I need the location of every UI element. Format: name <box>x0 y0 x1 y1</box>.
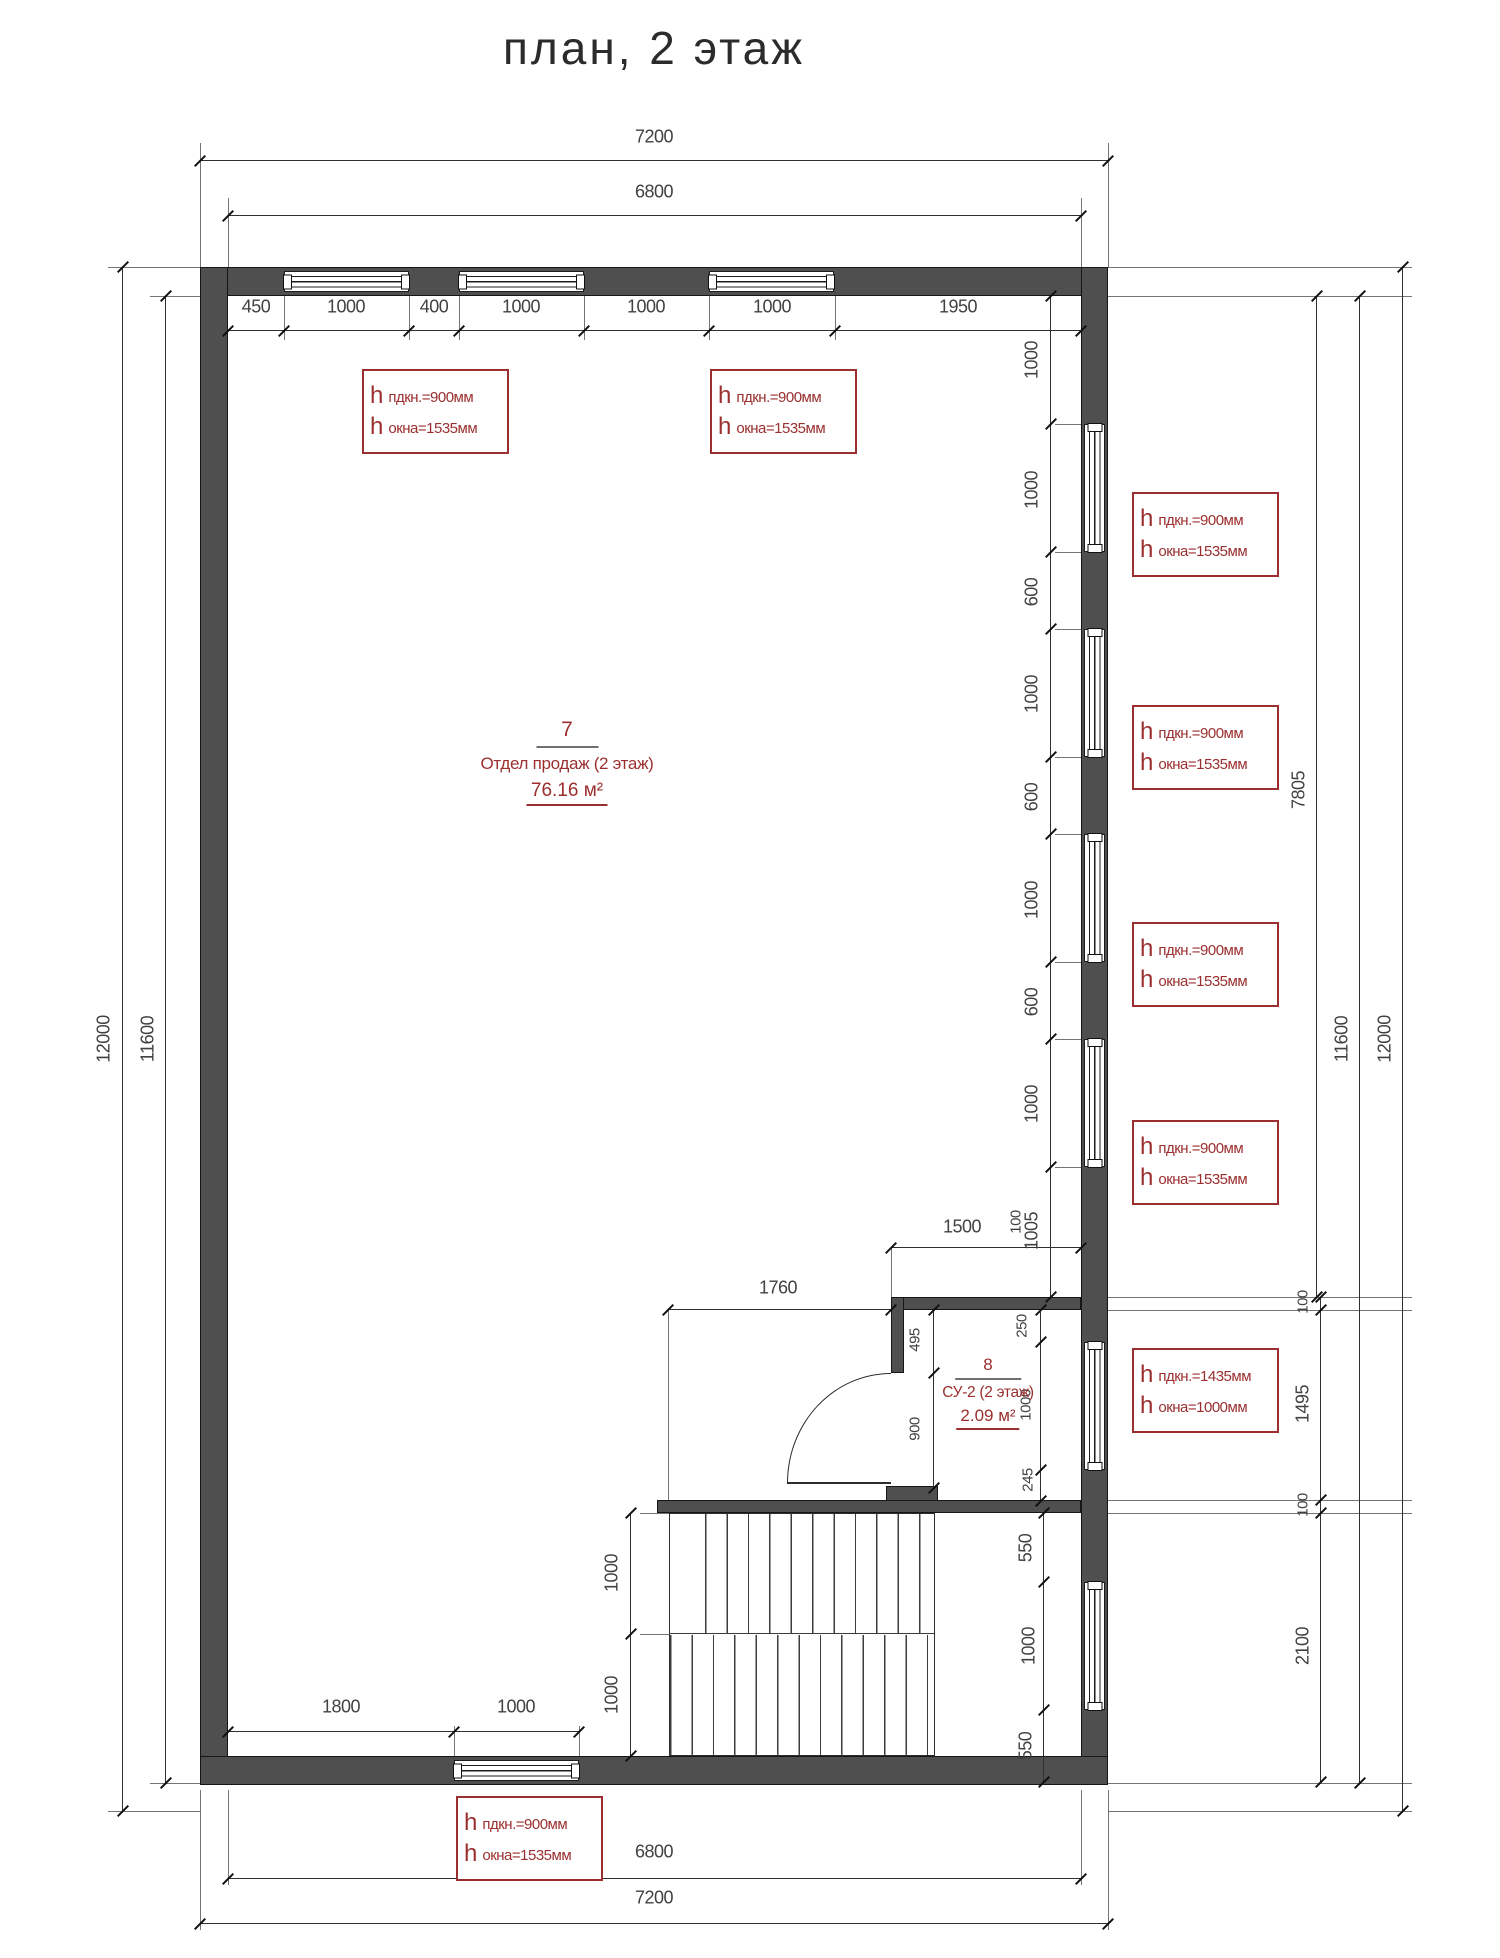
room-area: 2.09 м² <box>956 1406 1019 1430</box>
dimension-line <box>122 267 123 1811</box>
room-number: 8 <box>942 1355 1033 1375</box>
dimension-label: 1000 <box>1022 881 1043 919</box>
annotation-text: окна=1535мм <box>1158 757 1247 772</box>
dimension-label: 600 <box>1022 783 1043 812</box>
dimension-label: 1000 <box>1022 1085 1043 1123</box>
dimension-line <box>228 330 1081 331</box>
window-annotation: hпдкн.=900ммhокна=1535мм <box>456 1796 603 1881</box>
extension-line <box>1055 834 1081 835</box>
extension-line <box>409 296 410 340</box>
annotation-text: пдкн.=900мм <box>1158 726 1243 741</box>
height-symbol: h <box>1140 1169 1153 1187</box>
height-symbol: h <box>1140 723 1153 741</box>
annotation-row: hокна=1535мм <box>464 1845 597 1863</box>
height-symbol: h <box>370 387 383 405</box>
extension-line <box>1055 552 1081 553</box>
height-symbol: h <box>464 1845 477 1863</box>
annotation-row: hпдкн.=900мм <box>370 387 503 405</box>
room-number: 7 <box>480 718 653 742</box>
extension-line <box>1090 1513 1412 1514</box>
annotation-text: пдкн.=900мм <box>1158 513 1243 528</box>
dimension-label: 100 <box>1295 1493 1312 1517</box>
extension-line <box>1055 757 1081 758</box>
dimension-label: 7200 <box>635 1888 673 1909</box>
dimension-label: 250 <box>1014 1314 1031 1338</box>
window <box>1084 1582 1105 1710</box>
window-annotation: hпдкн.=900ммhокна=1535мм <box>1132 492 1279 577</box>
annotation-text: пдкн.=1435мм <box>1158 1369 1251 1384</box>
dimension-label: 1000 <box>502 297 540 318</box>
dimension-label: 450 <box>242 297 271 318</box>
extension-line <box>891 1247 892 1297</box>
dimension-line <box>200 1923 1108 1924</box>
dimension-label: 1000 <box>602 1554 623 1592</box>
dimension-line <box>933 1310 934 1488</box>
dimension-label: 1000 <box>1019 1627 1040 1665</box>
extension-line <box>1090 1500 1412 1501</box>
dimension-label: 400 <box>420 297 449 318</box>
height-symbol: h <box>718 418 731 436</box>
room-name: СУ-2 (2 этаж) <box>942 1384 1033 1402</box>
window <box>1084 834 1105 962</box>
wall-segment <box>891 1297 1081 1310</box>
extension-line <box>668 1309 669 1513</box>
dimension-label: 6800 <box>635 182 673 203</box>
dimension-line <box>165 296 166 1783</box>
extension-line <box>459 296 460 340</box>
height-symbol: h <box>1140 1138 1153 1156</box>
height-symbol: h <box>1140 1397 1153 1415</box>
annotation-text: окна=1535мм <box>1158 974 1247 989</box>
annotation-text: окна=1535мм <box>1158 1172 1247 1187</box>
room-label-rule <box>955 1378 1021 1380</box>
dimension-line <box>1320 1297 1321 1782</box>
extension-line <box>1055 1039 1081 1040</box>
extension-line <box>1081 1790 1082 1885</box>
dimension-line <box>1050 296 1051 1297</box>
dimension-label: 1950 <box>939 297 977 318</box>
dimension-label: 1000 <box>602 1676 623 1714</box>
annotation-text: окна=1535мм <box>388 421 477 436</box>
dimension-label: 100 <box>1295 1290 1312 1314</box>
window-annotation: hпдкн.=1435ммhокна=1000мм <box>1132 1348 1279 1433</box>
extension-line <box>200 1790 201 1930</box>
dimension-label: 1500 <box>943 1217 981 1238</box>
dimension-label: 600 <box>1022 578 1043 607</box>
wall-segment <box>200 1756 1108 1785</box>
stair-landing-divider <box>669 1633 935 1634</box>
annotation-text: окна=1535мм <box>736 421 825 436</box>
annotation-row: hпдкн.=900мм <box>1140 940 1273 958</box>
window-annotation: hпдкн.=900ммhокна=1535мм <box>362 369 509 454</box>
window <box>1084 1342 1105 1470</box>
dimension-line <box>1359 296 1360 1783</box>
window <box>1084 1039 1105 1167</box>
extension-line <box>1055 629 1081 630</box>
height-symbol: h <box>1140 940 1153 958</box>
annotation-row: hокна=1535мм <box>370 418 503 436</box>
window-annotation: hпдкн.=900ммhокна=1535мм <box>1132 705 1279 790</box>
dimension-label: 12000 <box>1375 1015 1396 1063</box>
annotation-text: пдкн.=900мм <box>1158 943 1243 958</box>
height-symbol: h <box>464 1814 477 1832</box>
annotation-text: пдкн.=900мм <box>1158 1141 1243 1156</box>
annotation-row: hокна=1535мм <box>1140 754 1273 772</box>
room-area: 76.16 м² <box>527 780 607 806</box>
door-swing-arc <box>787 1373 891 1483</box>
dimension-line <box>891 1247 1081 1248</box>
annotation-row: hокна=1535мм <box>1140 541 1273 559</box>
stair-treads-lower-flight <box>670 1635 934 1755</box>
annotation-text: окна=1000мм <box>1158 1400 1247 1415</box>
door-leaf <box>787 1482 891 1484</box>
extension-line <box>1108 267 1412 268</box>
height-symbol: h <box>1140 510 1153 528</box>
dimension-label: 1005 <box>1022 1212 1043 1250</box>
dimension-label: 2100 <box>1293 1627 1314 1665</box>
annotation-text: окна=1535мм <box>482 1848 571 1863</box>
extension-line <box>150 296 200 297</box>
window-annotation: hпдкн.=900ммhокна=1535мм <box>1132 1120 1279 1205</box>
extension-line <box>640 1634 669 1635</box>
floor-plan-page: { "title": "план, 2 этаж", "colors": {"w… <box>0 0 1500 1958</box>
dimension-label: 100 <box>1008 1210 1025 1234</box>
window <box>1084 424 1105 552</box>
extension-line <box>640 1513 669 1514</box>
extension-line <box>228 1790 229 1885</box>
height-symbol: h <box>1140 971 1153 989</box>
annotation-row: hокна=1535мм <box>1140 1169 1273 1187</box>
dimension-line <box>1402 267 1403 1811</box>
plan-title: план, 2 этаж <box>503 21 805 75</box>
height-symbol: h <box>1140 541 1153 559</box>
dimension-label: 900 <box>907 1417 924 1441</box>
room-name: Отдел продаж (2 этаж) <box>480 754 653 774</box>
extension-line <box>228 198 229 267</box>
dimension-label: 1760 <box>759 1278 797 1299</box>
annotation-row: hпдкн.=900мм <box>1140 723 1273 741</box>
dimension-label: 1000 <box>1022 471 1043 509</box>
height-symbol: h <box>1140 1366 1153 1384</box>
extension-line <box>1108 1783 1412 1784</box>
annotation-text: пдкн.=900мм <box>482 1817 567 1832</box>
wall-segment <box>657 1500 1081 1513</box>
extension-line <box>1055 424 1081 425</box>
window <box>1084 629 1105 757</box>
annotation-text: пдкн.=900мм <box>388 390 473 405</box>
dimension-label: 245 <box>1020 1468 1037 1492</box>
height-symbol: h <box>718 387 731 405</box>
dimension-line <box>668 1309 891 1310</box>
dimension-line <box>228 1731 579 1732</box>
dimension-label: 1000 <box>497 1697 535 1718</box>
height-symbol: h <box>370 418 383 436</box>
extension-line <box>284 296 285 340</box>
dimension-label: 1495 <box>1293 1385 1314 1423</box>
annotation-row: hокна=1535мм <box>718 418 851 436</box>
dimension-label: 12000 <box>94 1015 115 1063</box>
annotation-row: hпдкн.=900мм <box>1140 510 1273 528</box>
annotation-row: hпдкн.=900мм <box>718 387 851 405</box>
dimension-label: 7200 <box>635 127 673 148</box>
window <box>454 1760 579 1781</box>
staircase <box>669 1513 935 1756</box>
dimension-label: 1000 <box>753 297 791 318</box>
dimension-label: 550 <box>1016 1732 1037 1761</box>
dimension-label: 1000 <box>327 297 365 318</box>
dimension-line <box>1316 296 1317 1297</box>
dimension-line <box>200 160 1108 161</box>
dimension-line <box>228 215 1081 216</box>
extension-line <box>1055 962 1081 963</box>
extension-line <box>1108 296 1412 297</box>
dimension-label: 495 <box>907 1328 924 1352</box>
window <box>284 271 409 292</box>
wall-segment <box>200 267 228 1785</box>
window-annotation: hпдкн.=900ммhокна=1535мм <box>710 369 857 454</box>
extension-line <box>1090 1310 1412 1311</box>
dimension-label: 1000 <box>1022 675 1043 713</box>
annotation-row: hпдкн.=1435мм <box>1140 1366 1273 1384</box>
annotation-row: hокна=1535мм <box>1140 971 1273 989</box>
annotation-row: hпдкн.=900мм <box>1140 1138 1273 1156</box>
annotation-text: окна=1535мм <box>1158 544 1247 559</box>
room-label-sales: 7 Отдел продаж (2 этаж) 76.16 м² <box>480 718 653 806</box>
dimension-label: 6800 <box>635 1842 673 1863</box>
extension-line <box>1081 198 1082 267</box>
extension-line <box>584 296 585 340</box>
extension-line <box>709 296 710 340</box>
dimension-label: 7805 <box>1289 771 1310 809</box>
extension-line <box>1055 1167 1081 1168</box>
dimension-line <box>1043 1513 1044 1782</box>
extension-line <box>150 1783 200 1784</box>
dimension-label: 1000 <box>1022 341 1043 379</box>
room-label-su2: 8 СУ-2 (2 этаж) 2.09 м² <box>942 1355 1033 1430</box>
dimension-label: 1800 <box>322 1697 360 1718</box>
extension-line <box>1090 1297 1412 1298</box>
window <box>709 271 834 292</box>
room-label-rule <box>536 746 598 748</box>
height-symbol: h <box>1140 754 1153 772</box>
dimension-label: 1000 <box>627 297 665 318</box>
stair-treads-upper-flight <box>705 1514 935 1634</box>
window-annotation: hпдкн.=900ммhокна=1535мм <box>1132 922 1279 1007</box>
extension-line <box>835 296 836 340</box>
dimension-label: 600 <box>1022 988 1043 1017</box>
annotation-text: пдкн.=900мм <box>736 390 821 405</box>
extension-line <box>1108 1811 1412 1812</box>
dimension-line <box>228 1878 1081 1879</box>
dimension-label: 11600 <box>1332 1016 1353 1062</box>
dimension-label: 550 <box>1016 1534 1037 1563</box>
annotation-row: hпдкн.=900мм <box>464 1814 597 1832</box>
annotation-row: hокна=1000мм <box>1140 1397 1273 1415</box>
dimension-label: 11600 <box>138 1016 159 1062</box>
window <box>459 271 584 292</box>
